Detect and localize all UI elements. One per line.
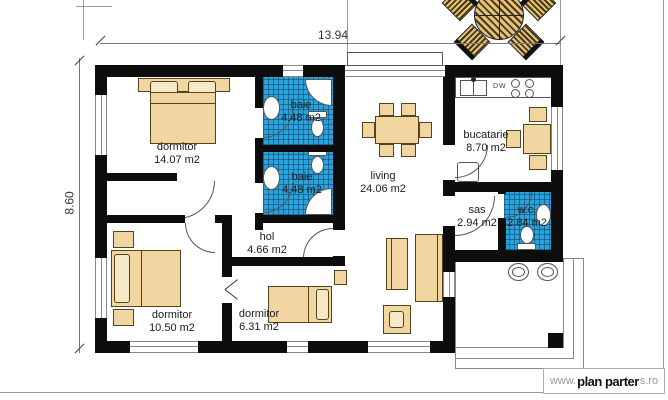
bed-fold-line [141, 251, 142, 306]
room-area: 2.84 m2 [507, 217, 547, 230]
room-area: 6.31 m2 [239, 321, 279, 334]
room-area: 10.50 m2 [149, 322, 195, 335]
bed-fold-line [308, 287, 309, 322]
wall-segment [455, 182, 563, 192]
dining-table [375, 116, 419, 144]
dishwasher-label: DW [493, 83, 507, 90]
room-area: 4.48 m2 [282, 184, 322, 197]
room-area: 24.06 m2 [360, 183, 406, 196]
room-label-sas: sas 2.94 m2 [457, 204, 497, 230]
stove-burner [525, 89, 534, 98]
wall-segment [255, 145, 333, 152]
entrance-door-threshold [345, 65, 445, 77]
room-label-wc: w.c. 2.84 m2 [507, 204, 547, 230]
room-area: 4.48 m2 [281, 112, 321, 125]
double-bed [150, 92, 216, 144]
garden-chair [442, 0, 479, 21]
nightstand [113, 231, 134, 248]
entrance-sliding-door [347, 52, 443, 66]
room-label-living: living 24.06 m2 [360, 170, 406, 196]
wall-segment [95, 341, 130, 353]
wall-segment [222, 215, 232, 277]
room-area: 14.07 m2 [154, 154, 200, 167]
floor-plan: 13.94 8.60 [0, 0, 668, 400]
dimension-label-height: 8.60 [63, 191, 77, 214]
sofa [415, 234, 443, 302]
nightstand [113, 309, 134, 326]
wall-segment [445, 65, 563, 77]
window-symbol [283, 65, 303, 77]
wall-segment [443, 180, 455, 196]
room-label-dormitor2: dormitor 10.50 m2 [149, 309, 195, 335]
watermark: www.plan parters.ro [543, 368, 665, 394]
watermark-brand: plan parter [577, 374, 639, 389]
room-name: sas [457, 204, 497, 217]
wall-segment [303, 65, 345, 77]
room-label-hol: hol 4.66 m2 [247, 231, 287, 257]
dimension-line-width [100, 43, 561, 44]
terrace-sliding-door [368, 341, 430, 353]
door-leaf [225, 289, 238, 300]
dimension-label-width: 13.94 [318, 28, 348, 42]
window-symbol [287, 341, 308, 353]
room-area: 2.94 m2 [457, 217, 497, 230]
wall-segment [443, 226, 455, 272]
garden-chair [520, 0, 557, 21]
stove-burner [511, 89, 520, 98]
wall-segment [95, 65, 283, 77]
door-arc [177, 181, 215, 219]
room-label-dormitor3: dormitor 6.31 m2 [239, 308, 279, 334]
kitchen-chair [529, 155, 547, 170]
wall-segment [333, 77, 345, 230]
room-name: living [360, 170, 406, 183]
room-name: dormitor [149, 309, 195, 322]
room-name: hol [247, 231, 287, 244]
armchair-cushion [389, 311, 404, 328]
window-symbol [95, 258, 107, 318]
pillow [114, 254, 130, 303]
sink-divider [473, 81, 474, 95]
sofa-back-line [391, 239, 392, 289]
wall-segment [107, 173, 177, 181]
wall-segment [255, 215, 345, 223]
dining-chair [419, 122, 432, 138]
dining-chair [362, 122, 375, 138]
room-name: bucatarie [463, 129, 508, 142]
wall-segment [551, 65, 563, 107]
sofa [386, 238, 408, 290]
room-label-bucatarie: bucatarie 8.70 m2 [463, 129, 508, 155]
garden-table-line [499, 0, 500, 40]
room-label-baie1: baie 4.48 m2 [281, 99, 321, 125]
frame-right-line [663, 0, 664, 393]
wall-segment [255, 77, 263, 108]
washbasin [263, 96, 280, 120]
dining-chair [379, 144, 394, 157]
door-leaf [225, 279, 238, 290]
room-label-baie2: baie 4.48 m2 [282, 171, 322, 197]
door-arc [185, 223, 215, 253]
terrace-chair-detail [541, 267, 554, 277]
wall-segment [232, 257, 345, 266]
watermark-prefix: www. [550, 375, 576, 387]
dining-chair [379, 103, 394, 116]
dining-chair [401, 144, 416, 157]
extension-line [83, 0, 84, 40]
wall-segment [498, 218, 506, 252]
wall-segment [107, 215, 185, 223]
wall-segment [430, 341, 455, 353]
door-arc [303, 228, 333, 258]
extension-line [76, 6, 112, 7]
room-name: baie [281, 99, 321, 112]
dimension-line-height [79, 58, 80, 353]
window-symbol [551, 107, 563, 170]
watermark-suffix: s.ro [640, 375, 658, 387]
room-area: 8.70 m2 [463, 142, 508, 155]
wall-segment [198, 341, 287, 353]
room-name: dormitor [239, 308, 279, 321]
bed-fold-line [151, 103, 215, 104]
wall-segment [95, 65, 107, 95]
wall-segment [455, 250, 563, 262]
terrace-pillar [548, 333, 563, 348]
room-label-dormitor1: dormitor 14.07 m2 [154, 141, 200, 167]
wall-segment [443, 297, 455, 341]
room-name: w.c. [507, 204, 547, 217]
wall-segment [443, 65, 455, 145]
stove-burner [525, 79, 534, 88]
terrace-door [443, 272, 455, 297]
window-symbol [130, 341, 198, 353]
sofa-back-line [437, 235, 438, 301]
room-name: baie [282, 171, 322, 184]
porch-edge-line [560, 0, 561, 66]
window-symbol [95, 95, 107, 155]
kitchen-chair [529, 107, 547, 122]
kitchen-table [523, 124, 551, 154]
pillow [316, 289, 329, 320]
stove-burner [511, 79, 520, 88]
dining-chair [401, 103, 416, 116]
terrace-chair-detail [512, 267, 525, 277]
wall-segment [222, 303, 232, 353]
wall-segment [498, 188, 506, 194]
nightstand [334, 270, 347, 285]
room-name: dormitor [154, 141, 200, 154]
toilet-tank [517, 243, 536, 250]
room-area: 4.66 m2 [247, 244, 287, 257]
wall-segment [95, 155, 107, 258]
faucet-icon [471, 77, 476, 82]
wall-segment [308, 341, 368, 353]
washbasin [263, 166, 280, 190]
